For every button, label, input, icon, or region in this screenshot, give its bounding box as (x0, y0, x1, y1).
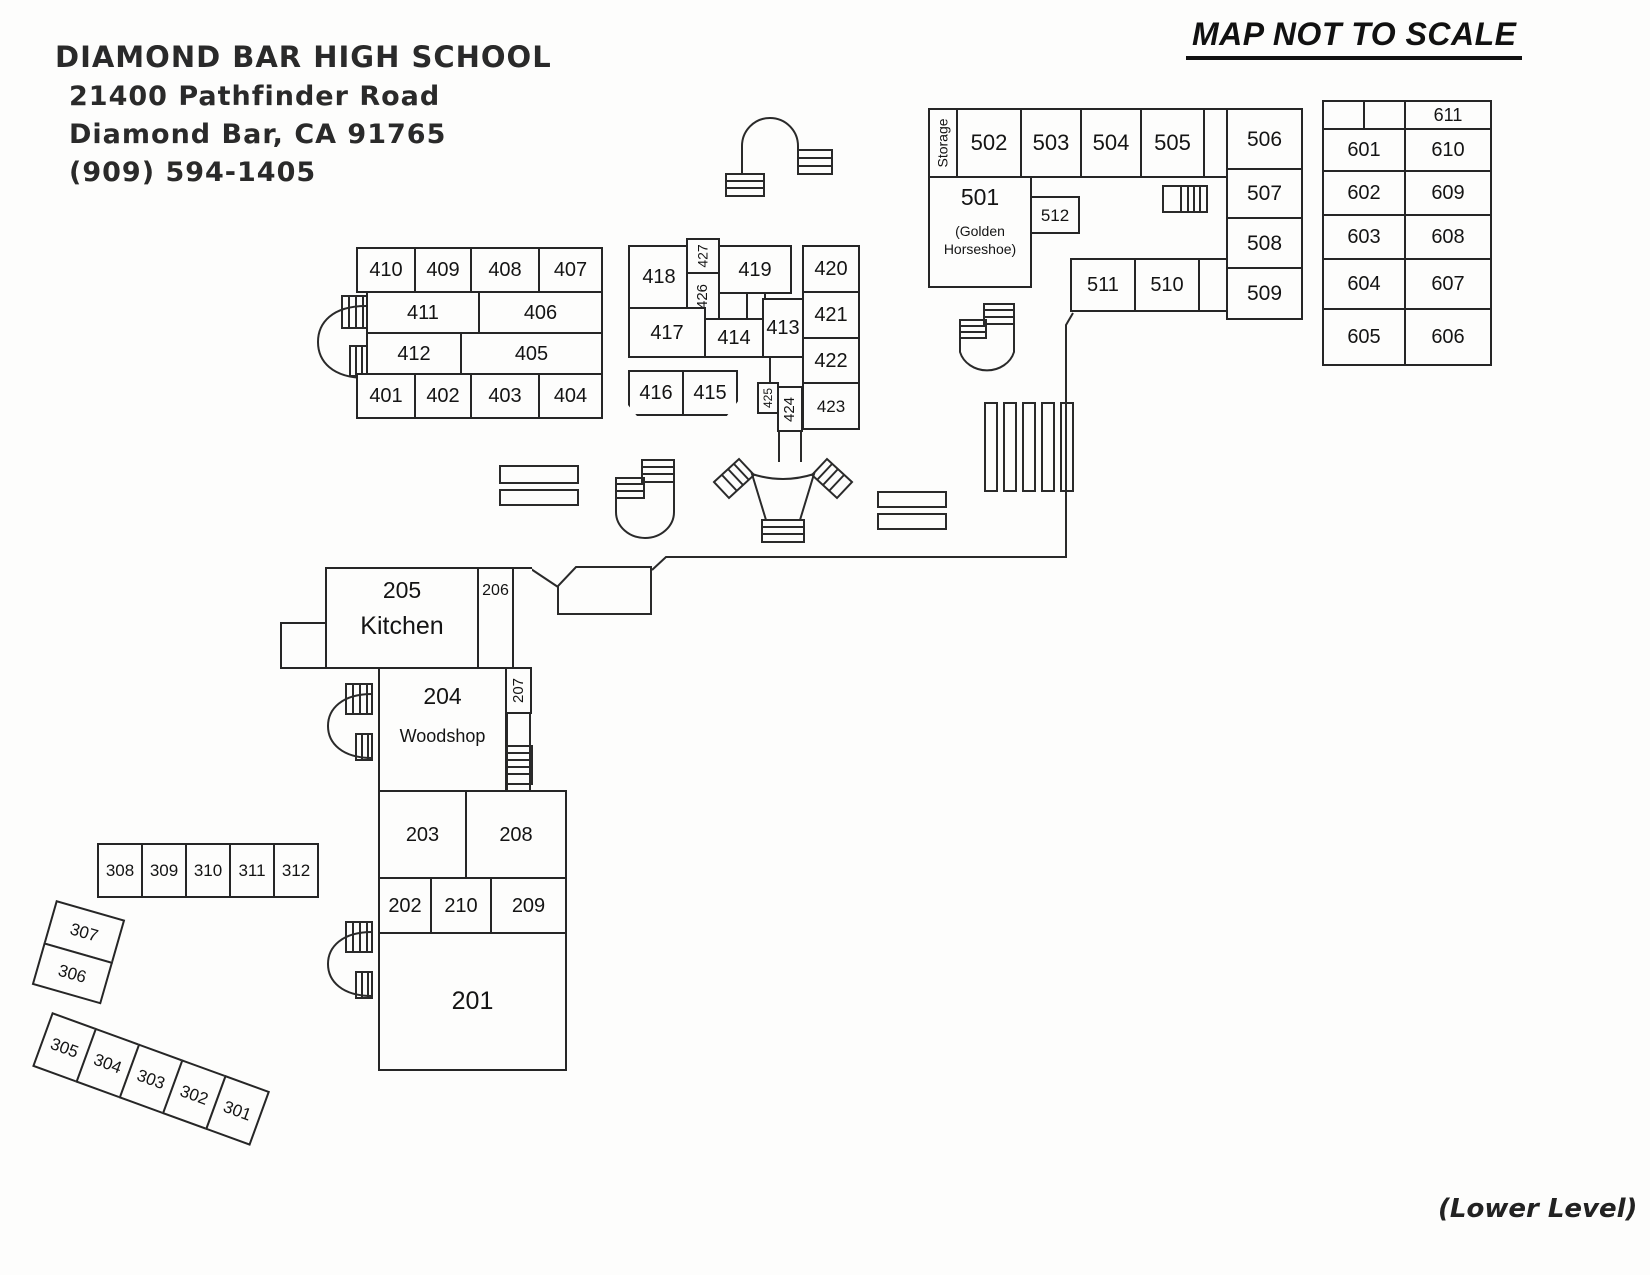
room-504: 504 (1080, 108, 1142, 178)
planter-strips-icon (985, 403, 1073, 491)
room-406: 406 (478, 291, 603, 334)
room-601: 601 (1322, 128, 1406, 172)
stairs-icon (960, 304, 1014, 370)
room-202: 202 (378, 877, 432, 934)
room-420: 420 (802, 245, 860, 293)
room-610: 610 (1404, 128, 1492, 172)
room-309: 309 (141, 843, 187, 898)
cell-divider (1363, 102, 1365, 128)
room-308: 308 (97, 843, 143, 898)
room-204-woodshop: 204 Woodshop (378, 667, 507, 792)
room-506: 506 (1226, 108, 1303, 170)
room-201: 201 (378, 932, 567, 1071)
room-505: 505 (1140, 108, 1205, 178)
room-411: 411 (366, 291, 480, 334)
room-609: 609 (1404, 170, 1492, 216)
room-507: 507 (1226, 168, 1303, 219)
room-419: 419 (718, 245, 792, 294)
room-409: 409 (414, 247, 472, 293)
room-602: 602 (1322, 170, 1406, 216)
room-509: 509 (1226, 267, 1303, 320)
room-storage: Storage (928, 108, 958, 178)
room-209: 209 (490, 877, 567, 934)
map-header: DIAMOND BAR HIGH SCHOOL 21400 Pathfinder… (55, 40, 552, 188)
room-311: 311 (229, 843, 275, 898)
room-603: 603 (1322, 214, 1406, 260)
room-422: 422 (802, 337, 860, 384)
room-501-golden-horseshoe: 501 (Golden Horseshoe) (928, 176, 1032, 288)
stairs-icon (726, 118, 832, 196)
room-427: 427 (686, 238, 720, 274)
room-405: 405 (460, 332, 603, 375)
room-425: 425 (757, 382, 779, 414)
unlabeled-cell (1322, 100, 1406, 130)
room-417: 417 (628, 307, 706, 358)
room-608: 608 (1404, 214, 1492, 260)
room-415: 415 (682, 370, 738, 416)
room-205-kitchen: 205 Kitchen (325, 567, 479, 669)
lower-level-note: (Lower Level) (1438, 1194, 1637, 1224)
room-410: 410 (356, 247, 416, 293)
room-416: 416 (628, 370, 684, 416)
room-312: 312 (273, 843, 319, 898)
stairs-icon (1163, 186, 1207, 212)
room-414: 414 (704, 318, 764, 358)
room-413: 413 (762, 298, 804, 358)
stairs-icon (318, 296, 368, 378)
room-407: 407 (538, 247, 603, 293)
room-607: 607 (1404, 258, 1492, 310)
room-210: 210 (430, 877, 492, 934)
room-310: 310 (185, 843, 231, 898)
room-207: 207 (505, 667, 532, 714)
room-502: 502 (956, 108, 1022, 178)
room-604: 604 (1322, 258, 1406, 310)
school-phone: (909) 594-1405 (69, 157, 552, 188)
map-not-to-scale-note: MAP NOT TO SCALE (1186, 16, 1522, 60)
unlabeled-cell (718, 292, 748, 320)
room-418: 418 (628, 245, 690, 309)
room-403: 403 (470, 373, 540, 419)
room-208: 208 (465, 790, 567, 879)
school-address-line2: Diamond Bar, CA 91765 (69, 119, 552, 150)
room-402: 402 (414, 373, 472, 419)
room-404: 404 (538, 373, 603, 419)
unlabeled-cell (1203, 108, 1228, 178)
room-412: 412 (366, 332, 462, 375)
room-503: 503 (1020, 108, 1082, 178)
stairs-icon (616, 460, 674, 538)
campus-map: DIAMOND BAR HIGH SCHOOL 21400 Pathfinder… (0, 0, 1650, 1275)
stairs-icon (328, 684, 372, 760)
amphitheater-icon (714, 459, 852, 542)
room-512: 512 (1030, 196, 1080, 234)
room-508: 508 (1226, 217, 1303, 269)
room-605: 605 (1322, 308, 1406, 366)
school-name: DIAMOND BAR HIGH SCHOOL (55, 40, 552, 74)
room-611: 611 (1404, 100, 1492, 130)
room-401: 401 (356, 373, 416, 419)
unlabeled-cell (512, 567, 532, 669)
stairs-icon (506, 746, 532, 784)
room-206: 206 (477, 567, 514, 669)
unlabeled-cell (1198, 258, 1228, 312)
room-424: 424 (777, 386, 803, 432)
room-203: 203 (378, 790, 467, 879)
room-421: 421 (802, 291, 860, 339)
room-511: 511 (1070, 258, 1136, 312)
room-606: 606 (1404, 308, 1492, 366)
room-423: 423 (802, 382, 860, 430)
stairs-icon (328, 922, 372, 998)
room-408: 408 (470, 247, 540, 293)
school-address-line1: 21400 Pathfinder Road (69, 81, 552, 112)
room-510: 510 (1134, 258, 1200, 312)
kitchen-annex (280, 622, 327, 669)
